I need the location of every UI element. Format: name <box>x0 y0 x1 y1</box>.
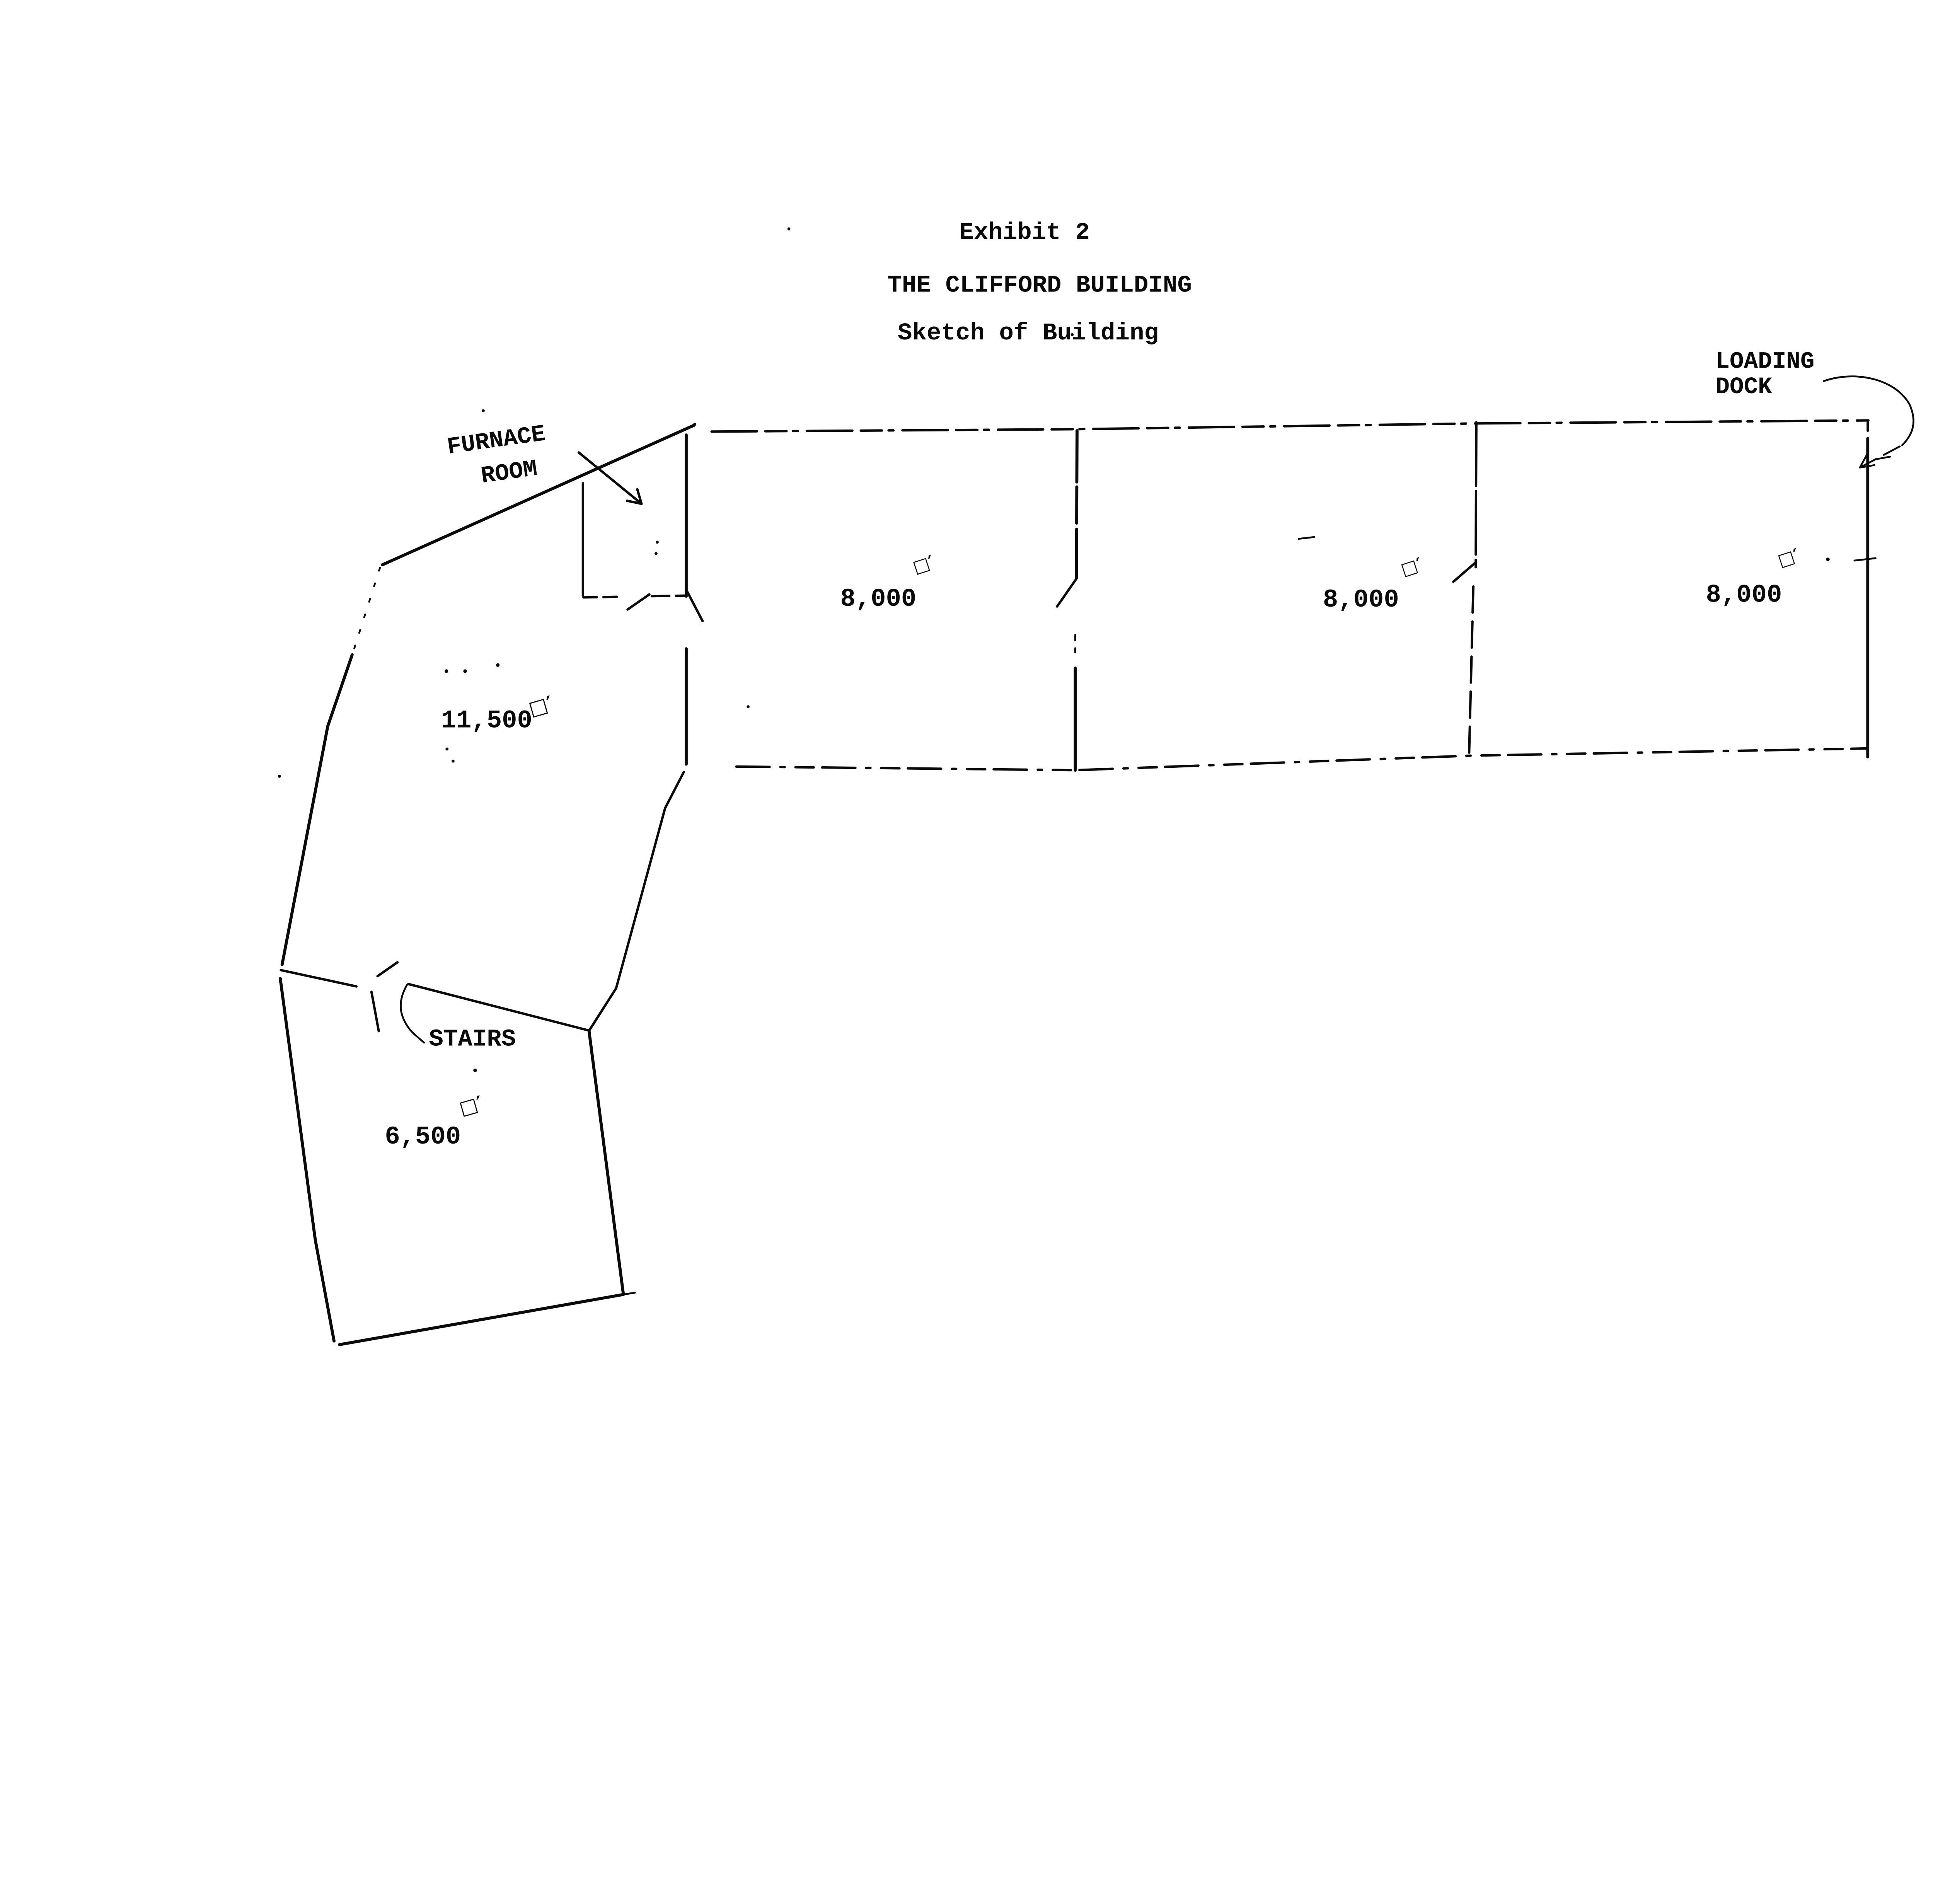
loading-dock-tick <box>1877 457 1890 459</box>
main-section-area-value: 11,500 <box>441 706 532 735</box>
lower-top-wall-left <box>281 970 356 986</box>
bay2-area-unit: □′ <box>1398 554 1425 580</box>
furnace-door-swing <box>627 595 649 610</box>
strip-top-wall <box>712 421 1868 432</box>
stairs-door-jamb <box>372 992 379 1031</box>
building-sketch: Exhibit 2 THE CLIFFORD BUILDING Sketch o… <box>0 0 1933 1488</box>
bay2-area-value: 8,000 <box>1323 585 1399 614</box>
lower-section-area-value: 6,500 <box>385 1122 461 1151</box>
stairs-door-leaf <box>378 962 398 976</box>
strip-bottom-wall <box>736 748 1868 770</box>
loading-dock-curve <box>1824 377 1913 445</box>
main-right-wall-lower <box>590 772 684 1030</box>
furnace-room-label-line1: FURNACE <box>445 421 547 461</box>
lower-corner-tick <box>624 1293 635 1295</box>
stairs-bracket <box>401 985 424 1043</box>
partition-2-lower <box>1469 586 1473 756</box>
bay3-area-value: 8,000 <box>1706 580 1782 609</box>
lower-right-wall <box>589 1031 623 1295</box>
scan-noise-specks <box>278 227 1830 1072</box>
scan-noise-dash <box>1299 537 1314 539</box>
main-left-wall <box>282 655 352 965</box>
lower-left-wall <box>280 978 334 1341</box>
furnace-bottom-wall-left <box>583 597 617 598</box>
main-corner-connector <box>687 592 702 621</box>
partition-1-upper <box>1076 431 1077 578</box>
partition-1-door-swing <box>1057 579 1076 607</box>
main-left-wall-faint <box>354 568 380 649</box>
loading-dock-label-line1: LOADING <box>1716 349 1815 375</box>
furnace-room-label-line2: ROOM <box>479 456 539 490</box>
partition-2-door-swing <box>1453 563 1476 582</box>
furnace-bottom-wall-right <box>652 596 686 597</box>
bay1-area-value: 8,000 <box>840 585 916 614</box>
furnace-arrow-shaft <box>579 452 642 504</box>
loading-dock-label-line2: DOCK <box>1716 374 1773 401</box>
lower-top-wall-right <box>408 984 589 1030</box>
right-wall-tick <box>1855 558 1876 561</box>
bay1-area-unit: □′ <box>910 551 936 577</box>
scanned-exhibit-page: Exhibit 2 THE CLIFFORD BUILDING Sketch o… <box>0 0 1933 1488</box>
page-title: THE CLIFFORD BUILDING <box>887 272 1192 299</box>
lower-bottom-wall <box>339 1294 623 1345</box>
lower-section-area-unit: □′ <box>457 1091 485 1119</box>
page-subtitle: Sketch of Building <box>898 319 1159 347</box>
partition-2-upper <box>1476 422 1476 567</box>
stairs-label: STAIRS <box>429 1026 516 1053</box>
bay3-area-unit: □′ <box>1775 545 1802 571</box>
exhibit-label: Exhibit 2 <box>959 219 1090 246</box>
